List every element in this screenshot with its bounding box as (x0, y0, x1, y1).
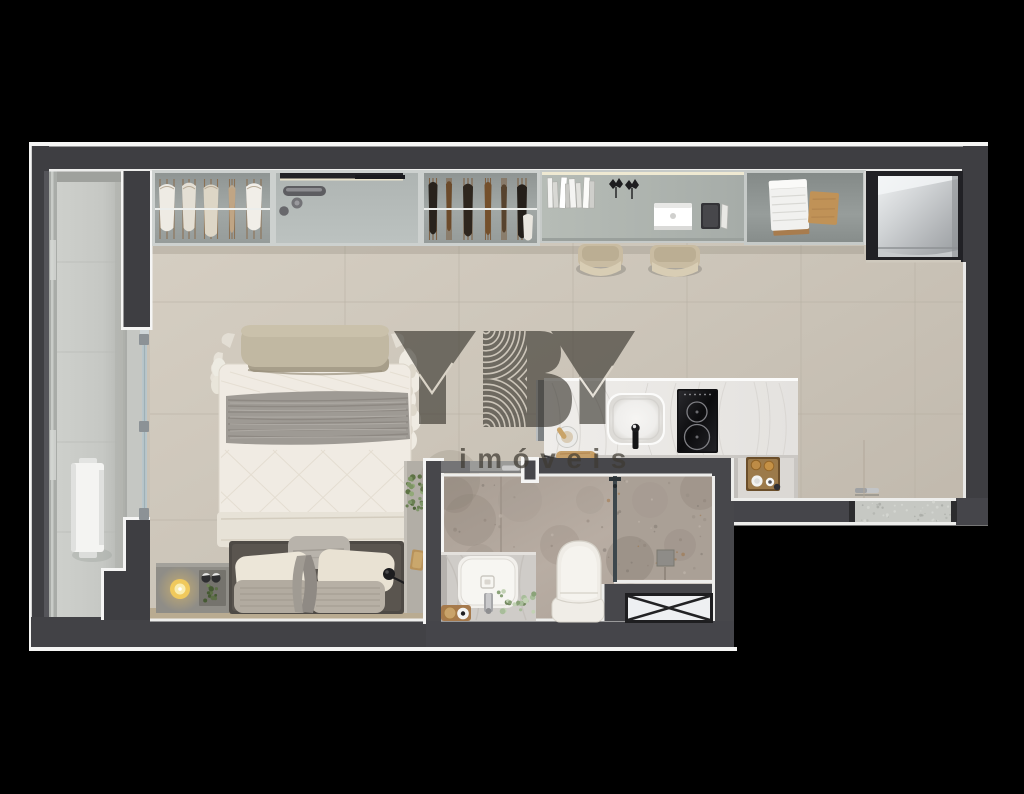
svg-text:imóveis: imóveis (459, 443, 637, 474)
